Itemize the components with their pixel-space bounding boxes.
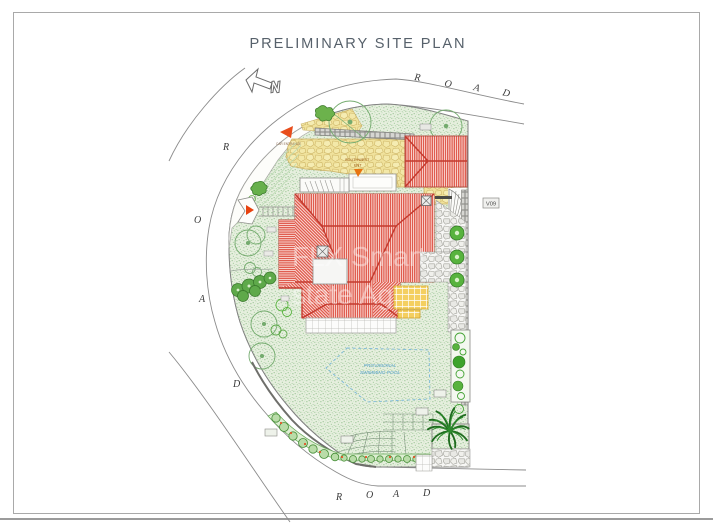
svg-text:state Ag: state Ag xyxy=(292,279,393,310)
svg-text:PROVISIONAL: PROVISIONAL xyxy=(364,363,397,369)
svg-text:SWIMMING POOL: SWIMMING POOL xyxy=(360,370,401,376)
svg-text:A: A xyxy=(392,489,400,500)
svg-text:PRELIMINARY SITE PLAN: PRELIMINARY SITE PLAN xyxy=(250,36,467,52)
svg-text:V09: V09 xyxy=(486,202,496,208)
svg-text:O: O xyxy=(194,215,201,226)
svg-text:D: D xyxy=(232,379,241,390)
svg-text:ENT: ENT xyxy=(354,164,362,168)
svg-text:A: A xyxy=(198,294,206,305)
svg-text:R: R xyxy=(222,142,229,153)
svg-text:FLX Smart: FLX Smart xyxy=(292,241,426,272)
svg-text:D: D xyxy=(422,488,431,499)
svg-text:SOUTHWEST: SOUTHWEST xyxy=(345,158,370,162)
svg-text:O: O xyxy=(366,490,373,501)
svg-text:R: R xyxy=(335,492,342,503)
